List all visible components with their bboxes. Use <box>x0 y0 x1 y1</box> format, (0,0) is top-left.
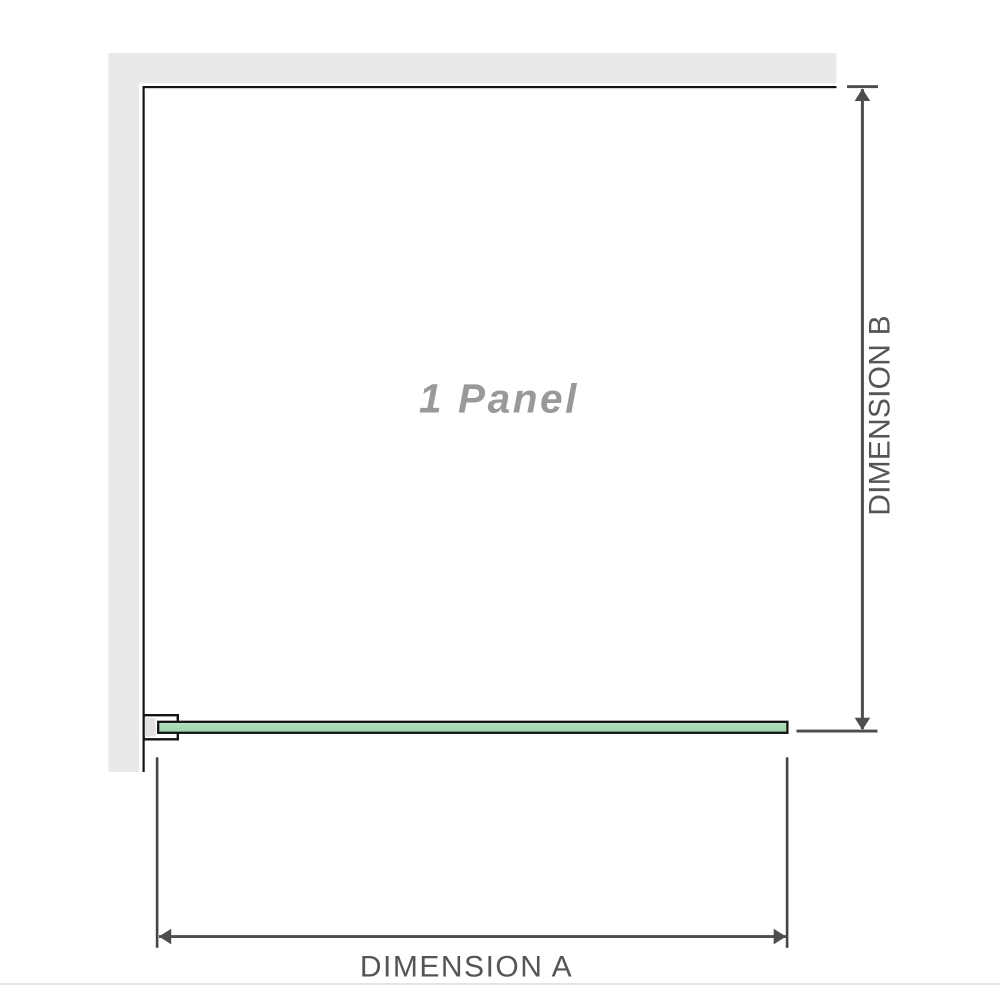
svg-text:1 Panel: 1 Panel <box>419 376 579 422</box>
svg-text:DIMENSION B: DIMENSION B <box>864 315 897 516</box>
svg-text:DIMENSION A: DIMENSION A <box>360 951 573 984</box>
